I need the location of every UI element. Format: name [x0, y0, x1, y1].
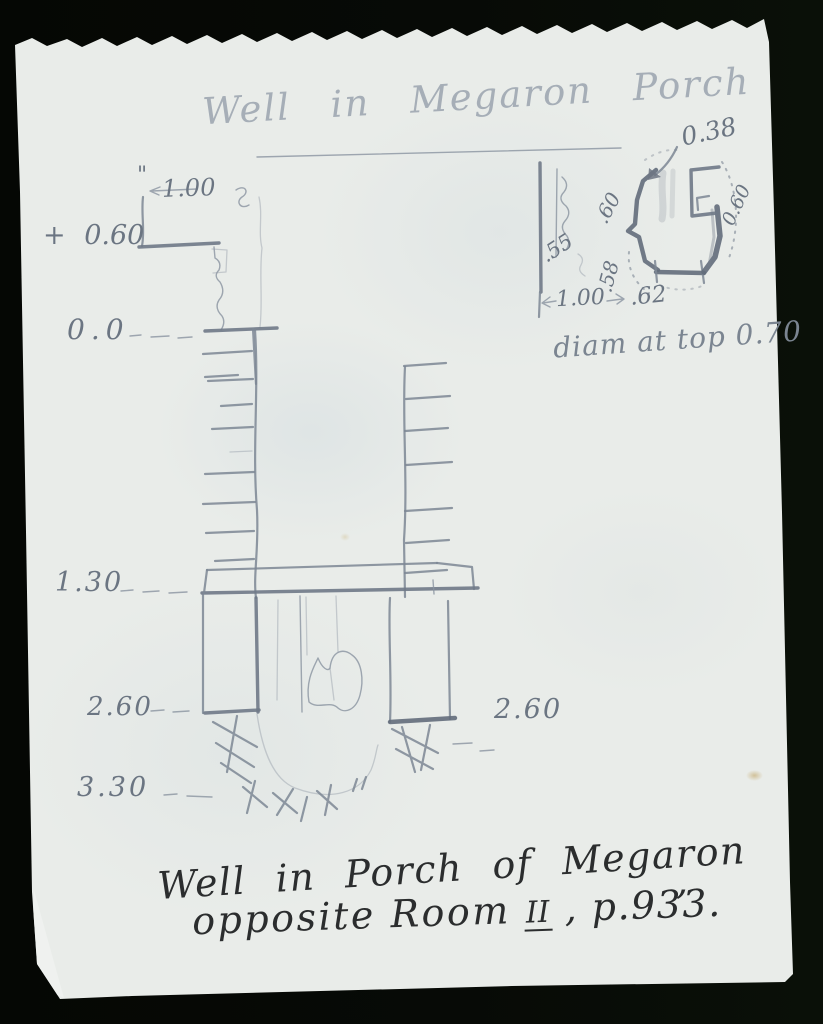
scanned-notebook-page: Well in Megaron Porch " 1.00 + 0.60 0.0 …	[0, 0, 823, 1024]
title-underline	[257, 148, 621, 157]
elevation-label-260: 2.60	[87, 694, 153, 720]
caption-line2-prefix: opposite Room	[191, 891, 511, 940]
room-numeral: II	[523, 898, 552, 932]
elevation-label-330: 3.30	[77, 774, 149, 801]
plan-base-width-dim: 1.00	[555, 287, 605, 312]
hatching-bottom	[243, 777, 366, 821]
depth-label-right: 2.60	[494, 696, 562, 723]
caption-page-ref: , p.933.	[564, 884, 722, 927]
elevation-label-00: 0.0	[67, 316, 130, 344]
elevation-label-plus060: + 0.60	[43, 222, 144, 249]
elevation-label-130: 1.30	[55, 569, 123, 596]
section-width-dim: 1.00	[162, 175, 216, 201]
hatching-left	[213, 716, 257, 783]
hatching-right	[392, 725, 438, 772]
section-drawing	[121, 187, 494, 821]
plan-base-inner-dim: .62	[629, 283, 668, 310]
inch-tick-mark: "	[137, 165, 147, 187]
